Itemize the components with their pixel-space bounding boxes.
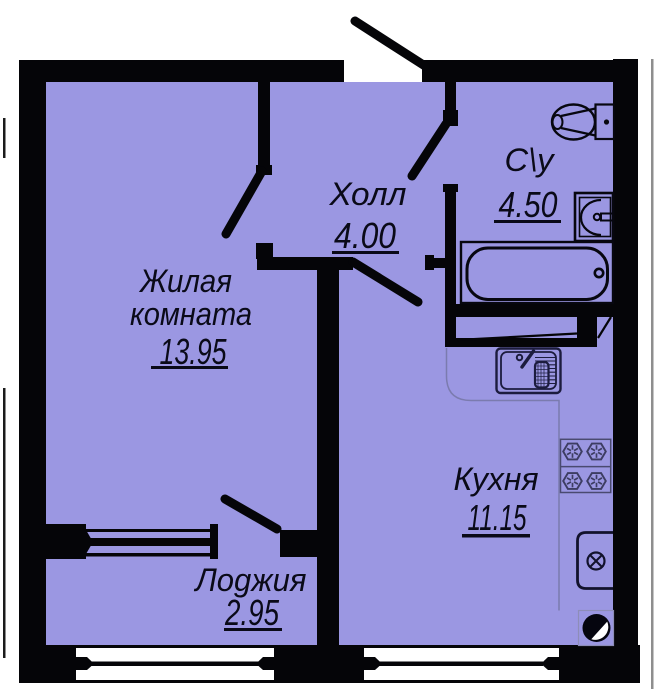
svg-text:4.50: 4.50 — [499, 184, 558, 225]
svg-text:2.95: 2.95 — [224, 592, 280, 633]
svg-text:13.95: 13.95 — [160, 331, 228, 372]
svg-text:Жилая: Жилая — [138, 263, 232, 299]
svg-text:Кухня: Кухня — [454, 461, 539, 497]
svg-text:комната: комната — [130, 296, 252, 332]
svg-text:4.00: 4.00 — [334, 215, 396, 256]
svg-text:Холл: Холл — [328, 176, 406, 212]
svg-text:С\у: С\у — [505, 142, 556, 178]
svg-text:11.15: 11.15 — [468, 497, 528, 538]
